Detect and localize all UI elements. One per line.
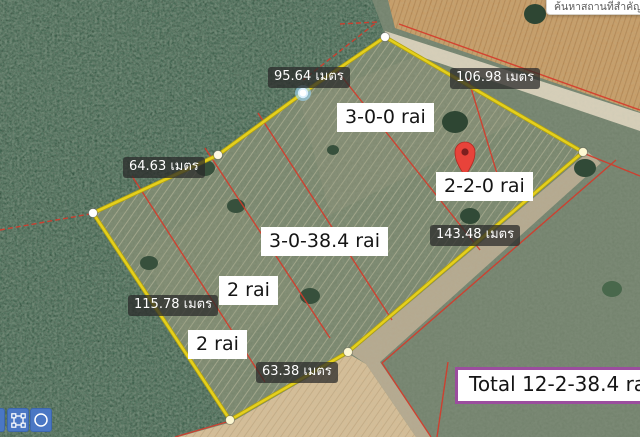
draw-polygon-button[interactable] bbox=[7, 408, 29, 432]
measurement-label: 115.78 เมตร bbox=[128, 295, 218, 316]
vertex-handle[interactable] bbox=[89, 209, 98, 218]
vertex-handle[interactable] bbox=[579, 148, 588, 157]
total-area-label: Total 12-2-38.4 rai bbox=[455, 367, 640, 404]
parcel-area-label: 2 rai bbox=[188, 330, 247, 359]
parcel-area-label: 2 rai bbox=[219, 276, 278, 305]
measurement-label: 143.48 เมตร bbox=[430, 225, 520, 246]
vertex-handle[interactable] bbox=[381, 33, 390, 42]
draw-circle-button[interactable] bbox=[30, 408, 52, 432]
map-canvas[interactable]: 95.64 เมตร 64.63 เมตร 106.98 เมตร 115.78… bbox=[0, 0, 640, 437]
measurement-label: 106.98 เมตร bbox=[450, 68, 540, 89]
parcel-area-label: 3-0-0 rai bbox=[337, 103, 434, 132]
measurement-label: 64.63 เมตร bbox=[123, 157, 205, 178]
parcel-area-label: 2-2-0 rai bbox=[436, 172, 533, 201]
measurement-label: 63.38 เมตร bbox=[256, 362, 338, 383]
parcel-area-label: 3-0-38.4 rai bbox=[261, 227, 388, 256]
tool-icon bbox=[0, 413, 1, 427]
search-input[interactable] bbox=[546, 0, 640, 15]
vertex-handle[interactable] bbox=[214, 151, 223, 160]
partial-tool-button[interactable] bbox=[0, 408, 5, 432]
draw-circle-icon bbox=[33, 412, 49, 428]
draw-polygon-icon bbox=[11, 413, 26, 428]
vertex-handle[interactable] bbox=[226, 416, 235, 425]
vertex-handle[interactable] bbox=[344, 348, 353, 357]
measurement-label: 95.64 เมตร bbox=[268, 67, 350, 88]
